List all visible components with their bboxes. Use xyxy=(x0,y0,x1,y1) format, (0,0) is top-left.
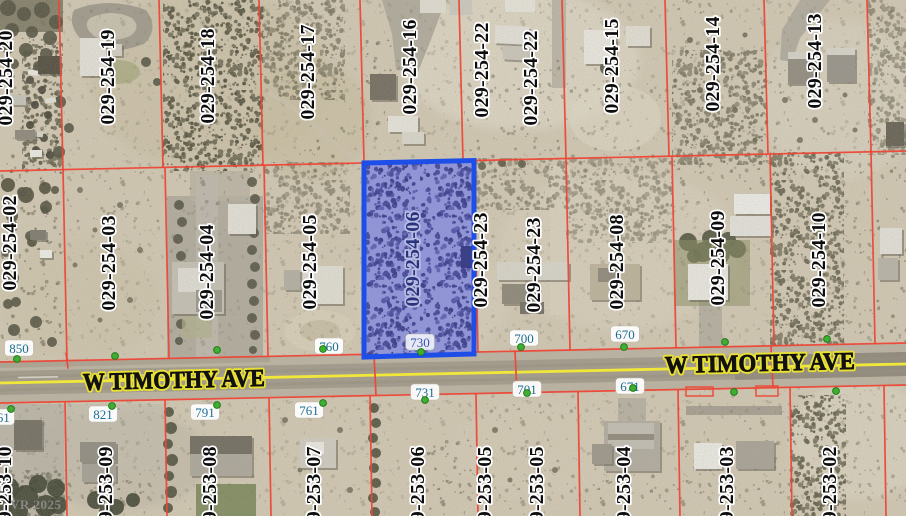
svg-text:029-253-08: 029-253-08 xyxy=(199,446,221,516)
svg-text:029-254-14: 029-254-14 xyxy=(702,16,724,111)
svg-text:029-253-04: 029-253-04 xyxy=(613,446,635,516)
svg-text:029-254-15: 029-254-15 xyxy=(601,18,623,113)
svg-text:761: 761 xyxy=(299,403,319,418)
svg-text:029-254-04: 029-254-04 xyxy=(196,224,218,319)
svg-text:029-253-06: 029-253-06 xyxy=(407,446,429,516)
svg-text:029-254-23: 029-254-23 xyxy=(523,217,545,312)
svg-text:029-254-22: 029-254-22 xyxy=(520,30,542,125)
svg-text:029-254-23: 029-254-23 xyxy=(470,212,492,307)
svg-text:029-254-09: 029-254-09 xyxy=(707,210,729,305)
svg-text:029-254-06: 029-254-06 xyxy=(402,211,424,306)
svg-text:029-253-03: 029-253-03 xyxy=(716,446,738,516)
svg-text:700: 700 xyxy=(514,331,534,346)
svg-text:791: 791 xyxy=(195,405,215,420)
svg-text:029-254-08: 029-254-08 xyxy=(606,214,628,309)
svg-text:029-254-22: 029-254-22 xyxy=(471,22,493,117)
svg-text:029-254-20: 029-254-20 xyxy=(0,30,17,125)
svg-text:029-253-05: 029-253-05 xyxy=(474,446,496,516)
svg-text:VR 2025: VR 2025 xyxy=(10,497,62,512)
svg-text:029-254-19: 029-254-19 xyxy=(97,29,119,124)
svg-text:029-253-02: 029-253-02 xyxy=(819,446,841,516)
svg-text:029-254-18: 029-254-18 xyxy=(197,28,219,123)
svg-text:029-254-03: 029-254-03 xyxy=(98,215,120,310)
svg-text:029-254-13: 029-254-13 xyxy=(804,13,826,108)
svg-text:861: 861 xyxy=(0,410,10,425)
svg-text:029-253-09: 029-253-09 xyxy=(95,446,117,516)
svg-text:029-254-05: 029-254-05 xyxy=(299,214,321,309)
svg-text:029-254-10: 029-254-10 xyxy=(808,212,830,307)
svg-text:W TIMOTHY AVE: W TIMOTHY AVE xyxy=(83,365,266,396)
svg-text:821: 821 xyxy=(93,407,113,422)
svg-text:850: 850 xyxy=(9,341,29,356)
svg-text:029-254-17: 029-254-17 xyxy=(297,24,319,119)
svg-text:029-254-02: 029-254-02 xyxy=(0,195,21,290)
svg-text:W TIMOTHY AVE: W TIMOTHY AVE xyxy=(665,348,856,379)
svg-text:029-253-05: 029-253-05 xyxy=(526,446,548,516)
svg-text:029-253-07: 029-253-07 xyxy=(303,446,325,516)
svg-text:670: 670 xyxy=(615,327,635,342)
svg-text:029-254-16: 029-254-16 xyxy=(399,19,421,114)
svg-text:730: 730 xyxy=(410,335,430,350)
